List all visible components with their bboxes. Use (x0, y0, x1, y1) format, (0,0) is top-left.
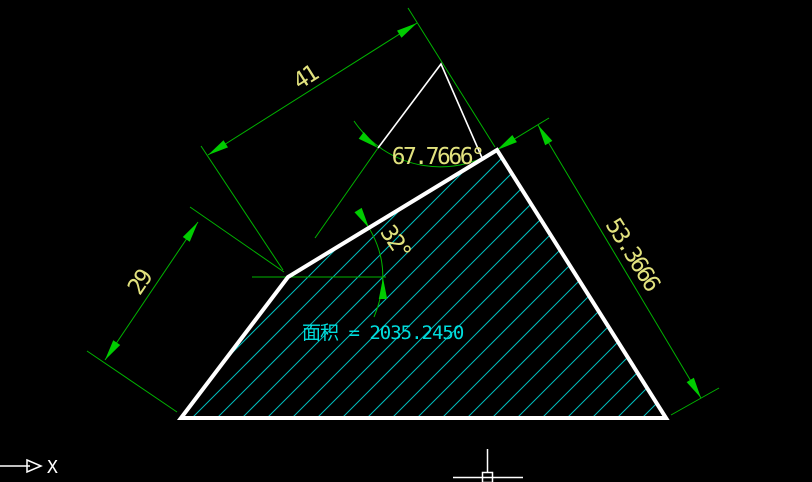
area-label: 面积 = 2035.2450 (302, 322, 464, 344)
dim-line-41 (208, 23, 417, 155)
polygon-outline (181, 150, 666, 418)
arrow-41-left (206, 140, 228, 158)
dim-line-53 (538, 125, 701, 398)
ext-line-29-top (190, 207, 284, 272)
dim-text-29: 29 (123, 265, 158, 300)
dim-text-41: 41 (289, 60, 323, 95)
ext-line-41-left (201, 146, 283, 270)
angle-text-67: 67.7666° (392, 144, 483, 170)
angle-67-extension (315, 148, 378, 238)
ext-line-53-bottom (671, 388, 719, 415)
arrow-32-lower (379, 278, 387, 299)
arrow-53-top (534, 123, 552, 145)
ucs-icon: X (0, 457, 58, 478)
crosshair-cursor (453, 449, 523, 482)
dim-line-29 (105, 222, 198, 360)
arrow-29-bottom (102, 340, 121, 362)
arrow-53-bottom (687, 378, 705, 400)
arrow-41-right (397, 19, 419, 37)
arrow-29-top (183, 220, 202, 242)
ext-line-41-right (408, 8, 495, 147)
cad-drawing-canvas[interactable]: 41 29 53.3666 67.7666° 32° 面积 = 2035.245… (0, 0, 812, 482)
ucs-x-label: X (47, 457, 58, 478)
ext-line-29-bottom (87, 351, 177, 412)
